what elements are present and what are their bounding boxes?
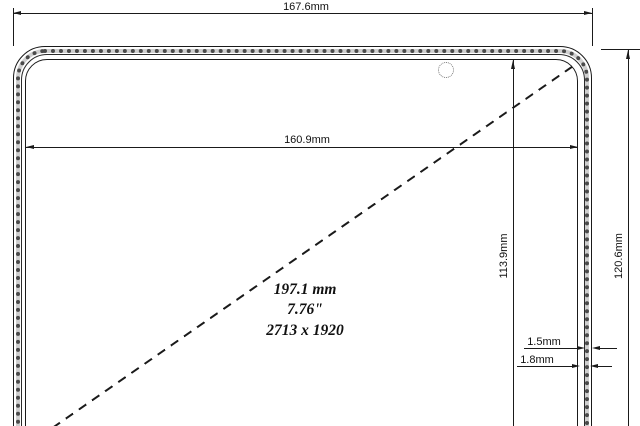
dimension-drawing: 197.1 mm 7.76" 2713 x 1920 167.6mm 160.9… <box>0 0 640 426</box>
arrow-left-icon <box>590 364 598 368</box>
arrow-up-icon <box>626 50 630 59</box>
dimension-body-height-label: 120.6mm <box>613 226 625 286</box>
arrow-left-icon <box>13 11 21 15</box>
arrow-left-icon <box>26 145 34 149</box>
leader-line-bezel-inner <box>524 348 577 349</box>
display-resolution-label: 2713 x 1920 <box>225 321 385 341</box>
display-spec-block: 197.1 mm 7.76" 2713 x 1920 <box>225 280 385 341</box>
dimension-overall-width-label: 167.6mm <box>250 1 362 13</box>
arrow-right-icon <box>572 364 580 368</box>
dimension-line-overall-width <box>13 13 592 14</box>
witness-line-body-top <box>601 49 640 50</box>
leader-line-bezel-outer <box>517 366 572 367</box>
display-active-area <box>25 59 578 426</box>
front-camera-cutout-icon <box>438 62 454 78</box>
display-diagonal-inch-label: 7.76" <box>225 300 385 320</box>
dimension-display-width-label: 160.9mm <box>251 134 363 146</box>
dimension-display-height-label: 113.9mm <box>498 226 510 286</box>
leader-tail-bezel-outer <box>598 366 612 367</box>
arrow-right-icon <box>577 346 585 350</box>
dimension-bezel-inner-label: 1.5mm <box>524 336 564 348</box>
display-diagonal-mm-label: 197.1 mm <box>225 280 385 300</box>
dimension-bezel-outer-label: 1.8mm <box>517 354 557 366</box>
arrow-right-icon <box>570 145 578 149</box>
arrow-right-icon <box>584 11 592 15</box>
dimension-line-body-height <box>628 50 629 426</box>
arrow-left-icon <box>592 346 600 350</box>
arrow-up-icon <box>511 60 515 69</box>
dimension-line-display-width <box>26 147 578 148</box>
leader-tail-bezel-inner <box>600 348 617 349</box>
dimension-line-display-height <box>513 60 514 426</box>
